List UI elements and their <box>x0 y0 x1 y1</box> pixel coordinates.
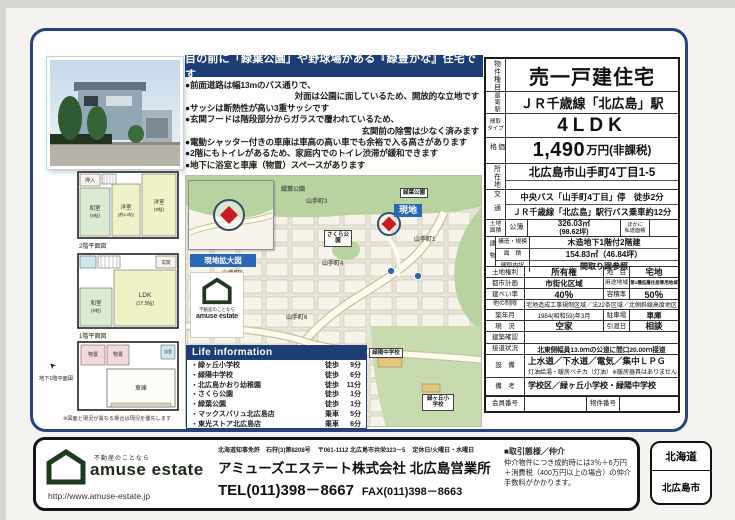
life-item-minutes: 1分 <box>339 399 361 409</box>
value-zoning: 第1種低層住居専用地域 <box>630 278 678 288</box>
life-item: ・緑陽中学校 徒歩 6分 <box>187 370 366 380</box>
logo-name: amuse estate <box>196 313 238 320</box>
property-details-table: 物件種目 売一戸建住宅 最寄駅 ＪＲ千歳線「北広島」駅 間取 タイプ 4LDK … <box>484 57 680 413</box>
label-handover: 引渡日 <box>603 321 630 331</box>
value-transport: 中央バス「山手町4丁目」停 徒歩2分 ＪＲ千歳線「北広島」駅行バス乗車約12分 <box>506 190 678 219</box>
row-land-area: 土地 面積 公簿 326.03㎡ (98.62坪) ほかに 私道面積 <box>486 220 678 238</box>
value-restrictions: 宅地造成工事規制区域／法22条区域／北側斜線高度地区 <box>525 300 678 309</box>
value-building-confirmation <box>525 332 678 343</box>
label-station: 最寄駅 <box>486 92 506 113</box>
life-item-name: ・緑葉公園 <box>191 399 325 409</box>
room-washitsu-1f: 和室 <box>90 299 102 307</box>
label-status: 現 況 <box>486 321 525 331</box>
room-yoshitsu1-size: (約5.8帖) <box>118 211 135 217</box>
label-member-number: 会員番号 <box>486 397 525 411</box>
row-transport: 交通 中央バス「山手町4丁目」停 徒歩2分 ＪＲ千歳線「北広島」駅行バス乗車約1… <box>486 190 678 220</box>
row-city-plan: 都市計画 市街化区域 用途地域 第1種低層住居専用地域 <box>486 278 678 289</box>
address-text: 北広島市山手町4丁目1-5 <box>529 164 656 180</box>
row-station: 最寄駅 ＪＲ千歳線「北広島」駅 <box>486 92 678 114</box>
label-built-date: 築年月 <box>486 310 525 320</box>
bus-stop-icon <box>415 273 422 280</box>
map-sakura-park-callout: さくら公園 <box>324 230 352 247</box>
inset-label: 現地拡大図 <box>190 254 256 267</box>
main-frame: 押入 和室 (6帖) 洋室 (約5.8帖) 洋室 (9帖) 2階平面図 玄関 和… <box>30 28 688 432</box>
life-item: ・さくら公園 徒歩 1分 <box>187 389 366 399</box>
phone-number: TEL(011)398－8667 <box>218 479 354 500</box>
row-status: 現 況 空家 引渡日 相談 <box>486 321 678 332</box>
value-equipment: 上水道／下水道／電気／集中ＬＰＧ 灯油給湯・暖房ペチカ（灯油）※暖房器具はありま… <box>525 355 678 377</box>
equipment-line2: 灯油給湯・暖房ペチカ（灯油）※暖房器具はありません <box>528 367 677 376</box>
property-photo <box>47 57 183 169</box>
row-building-confirmation: 建築確認 <box>486 332 678 344</box>
region-city: 北広島市 <box>652 471 710 503</box>
region-badge: 北海道 北広島市 <box>650 441 712 505</box>
row-price: 価格 1,490 万円(非課税) <box>486 138 678 164</box>
value-station: ＪＲ千歳線「北広島」駅 <box>506 92 678 113</box>
feature-line: 対面は公園に面しているため、開放的な立地です <box>185 91 481 102</box>
label-property-number: 物件番号 <box>586 397 620 411</box>
life-item-mode: 徒歩 <box>325 389 339 399</box>
room-garage: 車庫 <box>135 384 147 392</box>
label-floor-ratio: 容積率 <box>603 289 630 299</box>
map-park-name: 緑葉公園 <box>281 184 305 193</box>
value-land-area: 326.03㎡ (98.62坪) <box>528 220 620 237</box>
life-item: ・マックスバリュ北広島店 乗車 5分 <box>187 409 366 419</box>
map-district-3: 山手町3 <box>306 196 327 205</box>
label-floor-area: 面 積 <box>496 249 530 260</box>
room-yoshitsu2-size: (9帖) <box>154 206 165 213</box>
value-floor-area: 154.83㎡（46.84坪） <box>530 249 678 260</box>
amuse-house-logo-icon <box>46 449 86 485</box>
label-land-rights: 土地権利 <box>486 267 525 277</box>
value-remarks: 学校区／緑ヶ丘小学校・緑陽中学校 <box>525 378 678 396</box>
label-coverage-ratio: 建ぺい率 <box>486 289 525 299</box>
life-item-mode: 徒歩 <box>325 360 339 370</box>
life-item: ・北広島かおり幼稚園 徒歩 11分 <box>187 380 366 390</box>
row-restrictions: 他の制限 宅地造成工事規制区域／法22条区域／北側斜線高度地区 <box>486 300 678 310</box>
company-address: 〒061-1112 北広島市共栄323－5 <box>318 445 406 454</box>
footer-company-block: 北海道知事免許 石狩(3)第8208号 〒061-1112 北広島市共栄323－… <box>218 445 500 500</box>
feature-list: ●前面道路は幅13mのバス通りで、 対面は公園に面しているため、開放的な立地です… <box>185 80 481 171</box>
room-monooki2: 物置 <box>113 351 123 358</box>
room-yoshitsu1: 洋室 <box>120 203 132 211</box>
room-bath: 浴室 <box>164 348 172 354</box>
footer-contact-line: TEL(011)398－8667 FAX(011)398－8663 <box>218 479 500 500</box>
amuse-house-logo-icon <box>202 277 232 305</box>
value-handover: 相談 <box>630 321 678 331</box>
value-coverage-ratio: 40％ <box>525 289 603 299</box>
map-district-4: 山手町4 <box>322 258 343 267</box>
region-prefecture: 北海道 <box>652 443 710 471</box>
label-land-category: 地 目 <box>603 267 630 277</box>
logo-name: amuse estate <box>90 460 204 480</box>
feature-line: ●電動シャッター付きの車庫は車高の高い車でも余裕で入る高さがあります <box>185 137 481 148</box>
label-land-area: 土地 面積 <box>486 220 506 237</box>
room-washitsu-2f: 和室 <box>89 204 101 212</box>
row-equipment: 設 備 上水道／下水道／電気／集中ＬＰＧ 灯油給湯・暖房ペチカ（灯油）※暖房器具… <box>486 355 678 378</box>
life-item-name: ・マックスバリュ北広島店 <box>191 409 325 419</box>
row-remarks: 備 考 学校区／緑ヶ丘小学校・緑陽中学校 <box>486 378 678 397</box>
direction-arrow-icon: ➤ <box>47 360 58 371</box>
inset-illustration <box>189 181 273 249</box>
label-structure: 構造・規模 <box>496 237 530 248</box>
footer-license-line: 北海道知事免許 石狩(3)第8208号 〒061-1112 北広島市共栄323－… <box>218 445 500 454</box>
value-structure: 木造地下1階付2階建 <box>530 237 678 248</box>
life-item-name: ・北広島かおり幼稚園 <box>191 380 325 390</box>
floorplan-b1: 物置 物置 浴室 車庫 <box>77 341 179 411</box>
room-washitsu-2f-size: (6帖) <box>90 212 101 219</box>
transport-line2: ＪＲ千歳線「北広島」駅行バス乗車約12分 <box>513 205 672 219</box>
label-city-plan: 都市計画 <box>486 278 525 288</box>
life-item-name: ・緑陽中学校 <box>191 370 325 380</box>
row-numbers: 会員番号 物件番号 <box>486 396 678 411</box>
life-item-name: ・緑ヶ丘小学校 <box>191 360 325 370</box>
label-remarks: 備 考 <box>486 378 525 396</box>
value-land-rights: 所有権 <box>525 267 603 277</box>
value-status: 空家 <box>525 321 603 331</box>
map-elementary-label: 緑ヶ丘小学校 <box>422 394 454 411</box>
feature-line: ●前面道路は幅13mのバス通りで、 <box>185 80 481 91</box>
label-building: 建物 <box>486 237 496 266</box>
life-item-minutes: 5分 <box>339 409 361 419</box>
value-land-category: 宅地 <box>630 267 678 277</box>
holiday-note: 定休日/火曜日・水曜日 <box>412 445 474 454</box>
value-parking: 車庫 <box>630 310 678 320</box>
value-private-road <box>650 220 678 237</box>
value-price: 1,490 万円(非課税) <box>506 138 678 163</box>
label-zoning: 用途地域 <box>603 278 630 288</box>
headline-title: 目の前に「緑葉公園」や野球場がある『緑豊かな』住宅です <box>185 50 483 82</box>
label-restrictions: 他の制限 <box>486 300 525 309</box>
house-photo-illustration <box>50 60 180 166</box>
floorplan-1f: 玄関 和室 (6帖) LDK (17.5帖) <box>77 253 179 329</box>
label-parking: 駐車場 <box>603 310 630 320</box>
price-amount: 1,490 <box>533 139 586 162</box>
row-building: 建物 構造・規模 木造地下1階付2階建 面 積 154.83㎡（46.84坪） … <box>486 237 678 267</box>
row-built-date: 築年月 1984(昭和59)年3月 駐車場 車庫 <box>486 310 678 321</box>
feature-line: ●2階にもトイレがあるため、家庭内でのトイレ渋滞が緩和できます <box>185 148 481 159</box>
room-washitsu-1f-size: (6帖) <box>91 307 102 314</box>
subrow-structure: 構造・規模 木造地下1階付2階建 <box>496 237 678 249</box>
room-monooki1: 物置 <box>88 351 98 358</box>
life-item-mode: 乗車 <box>325 409 339 419</box>
life-item-minutes: 1分 <box>339 389 361 399</box>
label-property-type: 物件種目 <box>486 59 506 91</box>
life-item-minutes: 6分 <box>339 419 361 429</box>
land-area-m2: 326.03㎡ <box>558 220 590 229</box>
license-number: 北海道知事免許 石狩(3)第8208号 <box>218 445 311 454</box>
transaction-terms-title: ■取引態様／仲介 <box>504 446 634 457</box>
row-property-type: 物件種目 売一戸建住宅 <box>486 59 678 92</box>
value-member-number <box>525 397 586 411</box>
value-city-plan: 市街化区域 <box>525 278 603 288</box>
map-district-1: 山手町1 <box>414 234 435 243</box>
life-item-mode: 徒歩 <box>325 399 339 409</box>
value-property-number <box>620 397 678 411</box>
subrow-floor-area: 面 積 154.83㎡（46.84坪） <box>496 249 678 261</box>
transport-line1: 中央バス「山手町4丁目」停 徒歩2分 <box>520 190 663 204</box>
value-property-type: 売一戸建住宅 <box>506 59 678 91</box>
floorplan-b1-label: 地下1階平面図 <box>39 375 83 382</box>
company-url: http://www.amuse-estate.jp <box>48 491 150 501</box>
equipment-line1: 上水道／下水道／電気／集中ＬＰＧ <box>528 355 666 367</box>
floorplan-1f-label: 1階平面図 <box>79 331 106 340</box>
map-logo-box: 不動産のことなら amuse estate <box>190 272 244 338</box>
map-district-6: 山手町6 <box>286 312 307 321</box>
value-layout: 4LDK <box>506 114 678 137</box>
map-junior-high-label: 緑陽中学校 <box>369 348 403 358</box>
footer: 不動産のことなら amuse estate http://www.amuse-e… <box>33 437 640 511</box>
feature-line: ●サッシは断熱性が高い3重サッシです <box>185 103 481 114</box>
room-oshiire: 押入 <box>85 177 95 184</box>
life-information-header: Life information <box>187 346 366 360</box>
company-name: アミューズエステート株式会社 北広島営業所 <box>218 457 500 477</box>
map-park-callout: 緑葉公園 <box>400 188 428 198</box>
fax-number: FAX(011)398－8663 <box>362 483 462 500</box>
life-item-mode: 徒歩 <box>325 380 339 390</box>
life-item-mode: 徒歩 <box>325 370 339 380</box>
site-inset-map <box>188 180 274 250</box>
row-address: 所在地 北広島市山手町4丁目1-5 <box>486 164 678 190</box>
life-item-minutes: 9分 <box>339 360 361 370</box>
life-item-name: ・さくら公園 <box>191 389 325 399</box>
value-floor-ratio: 50％ <box>630 289 678 299</box>
floorplan-2f-label: 2階平面図 <box>79 241 106 250</box>
feature-line: 玄関前の除雪は少なく済みます <box>185 126 481 137</box>
value-address: 北広島市山手町4丁目1-5 <box>506 164 678 189</box>
life-item-name: ・東光ストア北広島店 <box>191 419 325 429</box>
building-subrows: 構造・規模 木造地下1階付2階建 面 積 154.83㎡（46.84坪） 間取内… <box>496 237 678 266</box>
floorplan-2f: 押入 和室 (6帖) 洋室 (約5.8帖) 洋室 (9帖) <box>77 171 179 239</box>
room-ldk: LDK <box>139 292 152 299</box>
life-item: ・緑ヶ丘小学校 徒歩 9分 <box>187 360 366 370</box>
label-road-frontage: 接道状況 <box>486 344 525 354</box>
room-ldk-size: (17.5帖) <box>136 300 154 307</box>
label-price: 価格 <box>486 138 506 163</box>
value-built-date: 1984(昭和59)年3月 <box>525 310 603 320</box>
label-land-register: 公簿 <box>506 220 528 237</box>
transaction-terms-body: 仲介物件につき成約時には3％＋6万円＋消費税（400万円以上の場合）の仲介手数料… <box>504 458 634 488</box>
life-item: ・東光ストア北広島店 乗車 6分 <box>187 419 366 429</box>
label-layout: 間取 タイプ <box>486 114 506 137</box>
label-transport: 交通 <box>486 190 506 219</box>
life-item-minutes: 11分 <box>339 380 361 390</box>
footer-logo-block: 不動産のことなら amuse estate http://www.amuse-e… <box>46 447 214 507</box>
floorplan-note: ※図面と現況が異なる場合は現況を優先します <box>63 415 171 422</box>
room-genkan: 玄関 <box>162 259 171 266</box>
row-layout: 間取 タイプ 4LDK <box>486 114 678 138</box>
label-private-road: ほかに 私道面積 <box>620 220 650 237</box>
row-road-frontage: 接道状況 北東側幅員13.0ｍの公道に間口20.00ｍ接道 <box>486 344 678 355</box>
row-coverage: 建ぺい率 40％ 容積率 50％ <box>486 289 678 300</box>
headline-banner: 目の前に「緑葉公園」や野球場がある『緑豊かな』住宅です <box>185 55 483 77</box>
bus-stop-icon <box>388 268 395 275</box>
room-yoshitsu2: 洋室 <box>153 198 165 206</box>
row-land-rights: 土地権利 所有権 地 目 宅地 <box>486 267 678 278</box>
flyer-page: 押入 和室 (6帖) 洋室 (約5.8帖) 洋室 (9帖) 2階平面図 玄関 和… <box>0 0 735 520</box>
value-road-frontage: 北東側幅員13.0ｍの公道に間口20.00ｍ接道 <box>525 344 678 354</box>
life-item-minutes: 6分 <box>339 370 361 380</box>
divider <box>506 180 678 181</box>
feature-line: ●玄関フードは階段部分からガラスで覆われているため、 <box>185 114 481 125</box>
feature-line: ●地下に浴室と車庫（物置）スペースがあります <box>185 160 481 171</box>
label-equipment: 設 備 <box>486 355 525 377</box>
label-building-confirmation: 建築確認 <box>486 332 525 343</box>
land-area-tsubo: (98.62坪) <box>559 229 588 237</box>
price-unit: 万円(非課税) <box>586 142 651 158</box>
site-label: 現地 <box>394 204 422 217</box>
life-item: ・緑葉公園 徒歩 1分 <box>187 399 366 409</box>
life-information-panel: Life information ・緑ヶ丘小学校 徒歩 9分 ・緑陽中学校 徒歩… <box>186 345 367 429</box>
life-item-mode: 乗車 <box>325 419 339 429</box>
label-address: 所在地 <box>486 164 506 189</box>
transaction-terms-block: ■取引態様／仲介 仲介物件につき成約時には3％＋6万円＋消費税（400万円以上の… <box>504 446 634 508</box>
